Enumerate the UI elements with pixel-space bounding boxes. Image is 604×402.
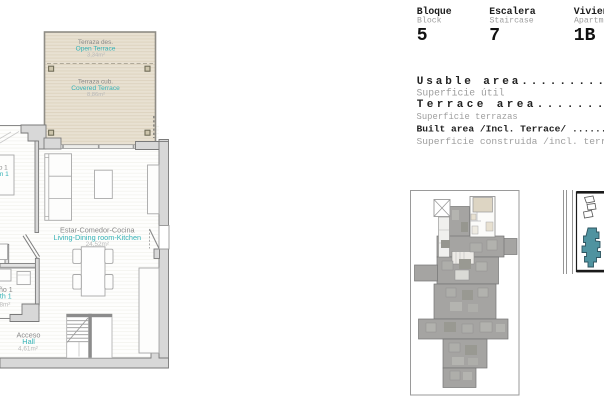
svg-text:Escalera: Escalera <box>489 6 535 17</box>
svg-text:Usable area...................: Usable area..................... <box>417 76 604 88</box>
svg-text:Bath 1: Bath 1 <box>0 294 12 301</box>
svg-text:4,61m²: 4,61m² <box>18 345 38 352</box>
svg-text:Superficie construida /incl. t: Superficie construida /incl. terraza/ .. <box>417 136 604 147</box>
svg-text:8,86m²: 8,86m² <box>87 92 105 98</box>
svg-text:7: 7 <box>489 26 500 46</box>
svg-text:3,34m²: 3,34m² <box>87 53 105 59</box>
svg-text:Covered Terrace: Covered Terrace <box>71 85 120 92</box>
svg-text:Bloque: Bloque <box>417 6 452 17</box>
svg-text:Staircase: Staircase <box>490 16 534 26</box>
svg-text:1B: 1B <box>574 26 596 46</box>
svg-text:Vivienda: Vivienda <box>574 6 604 17</box>
svg-text:Apartment: Apartment <box>574 17 604 26</box>
svg-text:4,18m²: 4,18m² <box>0 302 10 309</box>
svg-text:5: 5 <box>417 26 428 46</box>
svg-text:Open Terrace: Open Terrace <box>76 46 116 53</box>
svg-text:Superficie útil: Superficie útil <box>417 88 505 99</box>
svg-text:Terrace area..................: Terrace area................... <box>417 99 604 111</box>
svg-text:Superficie terrazas: Superficie terrazas <box>417 112 518 122</box>
svg-text:om 1: om 1 <box>0 171 9 178</box>
svg-text:Built area /Incl. Terrace/ ...: Built area /Incl. Terrace/ ............. <box>417 124 604 135</box>
svg-text:Block: Block <box>417 16 442 26</box>
